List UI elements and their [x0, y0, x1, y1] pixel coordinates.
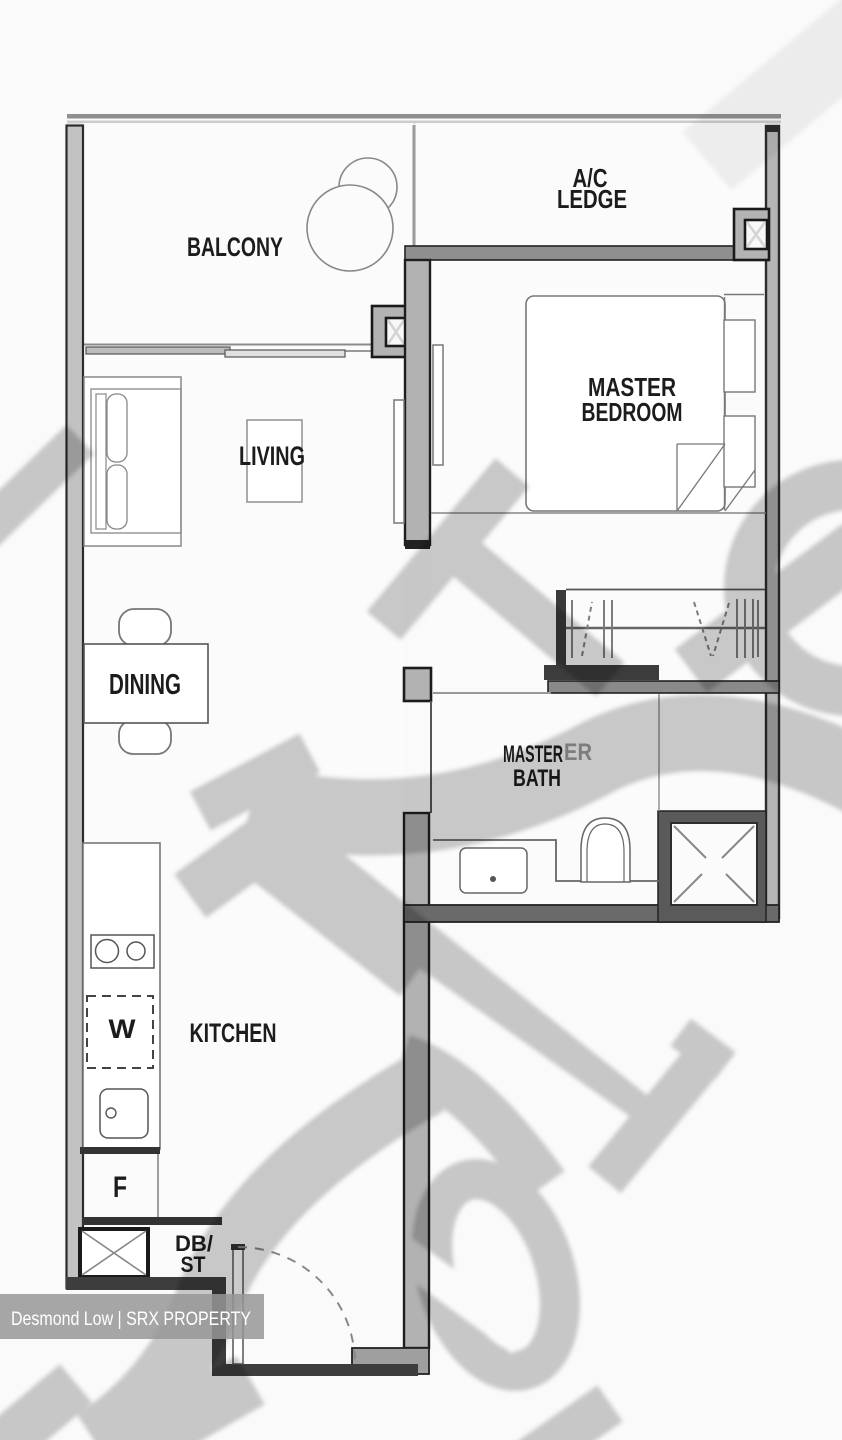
- svg-text:LEDGE: LEDGE: [557, 184, 627, 214]
- svg-text:F: F: [113, 1171, 127, 1204]
- svg-text:LIVING: LIVING: [239, 441, 305, 471]
- svg-text:KITCHEN: KITCHEN: [190, 1018, 277, 1048]
- svg-text:Desmond Low | SRX PROPERTY: Desmond Low | SRX PROPERTY: [11, 1308, 251, 1330]
- svg-text:DINING: DINING: [109, 669, 181, 701]
- svg-text:BALCONY: BALCONY: [187, 232, 283, 262]
- svg-text:BEDROOM: BEDROOM: [582, 397, 683, 427]
- svg-text:W: W: [109, 1014, 137, 1044]
